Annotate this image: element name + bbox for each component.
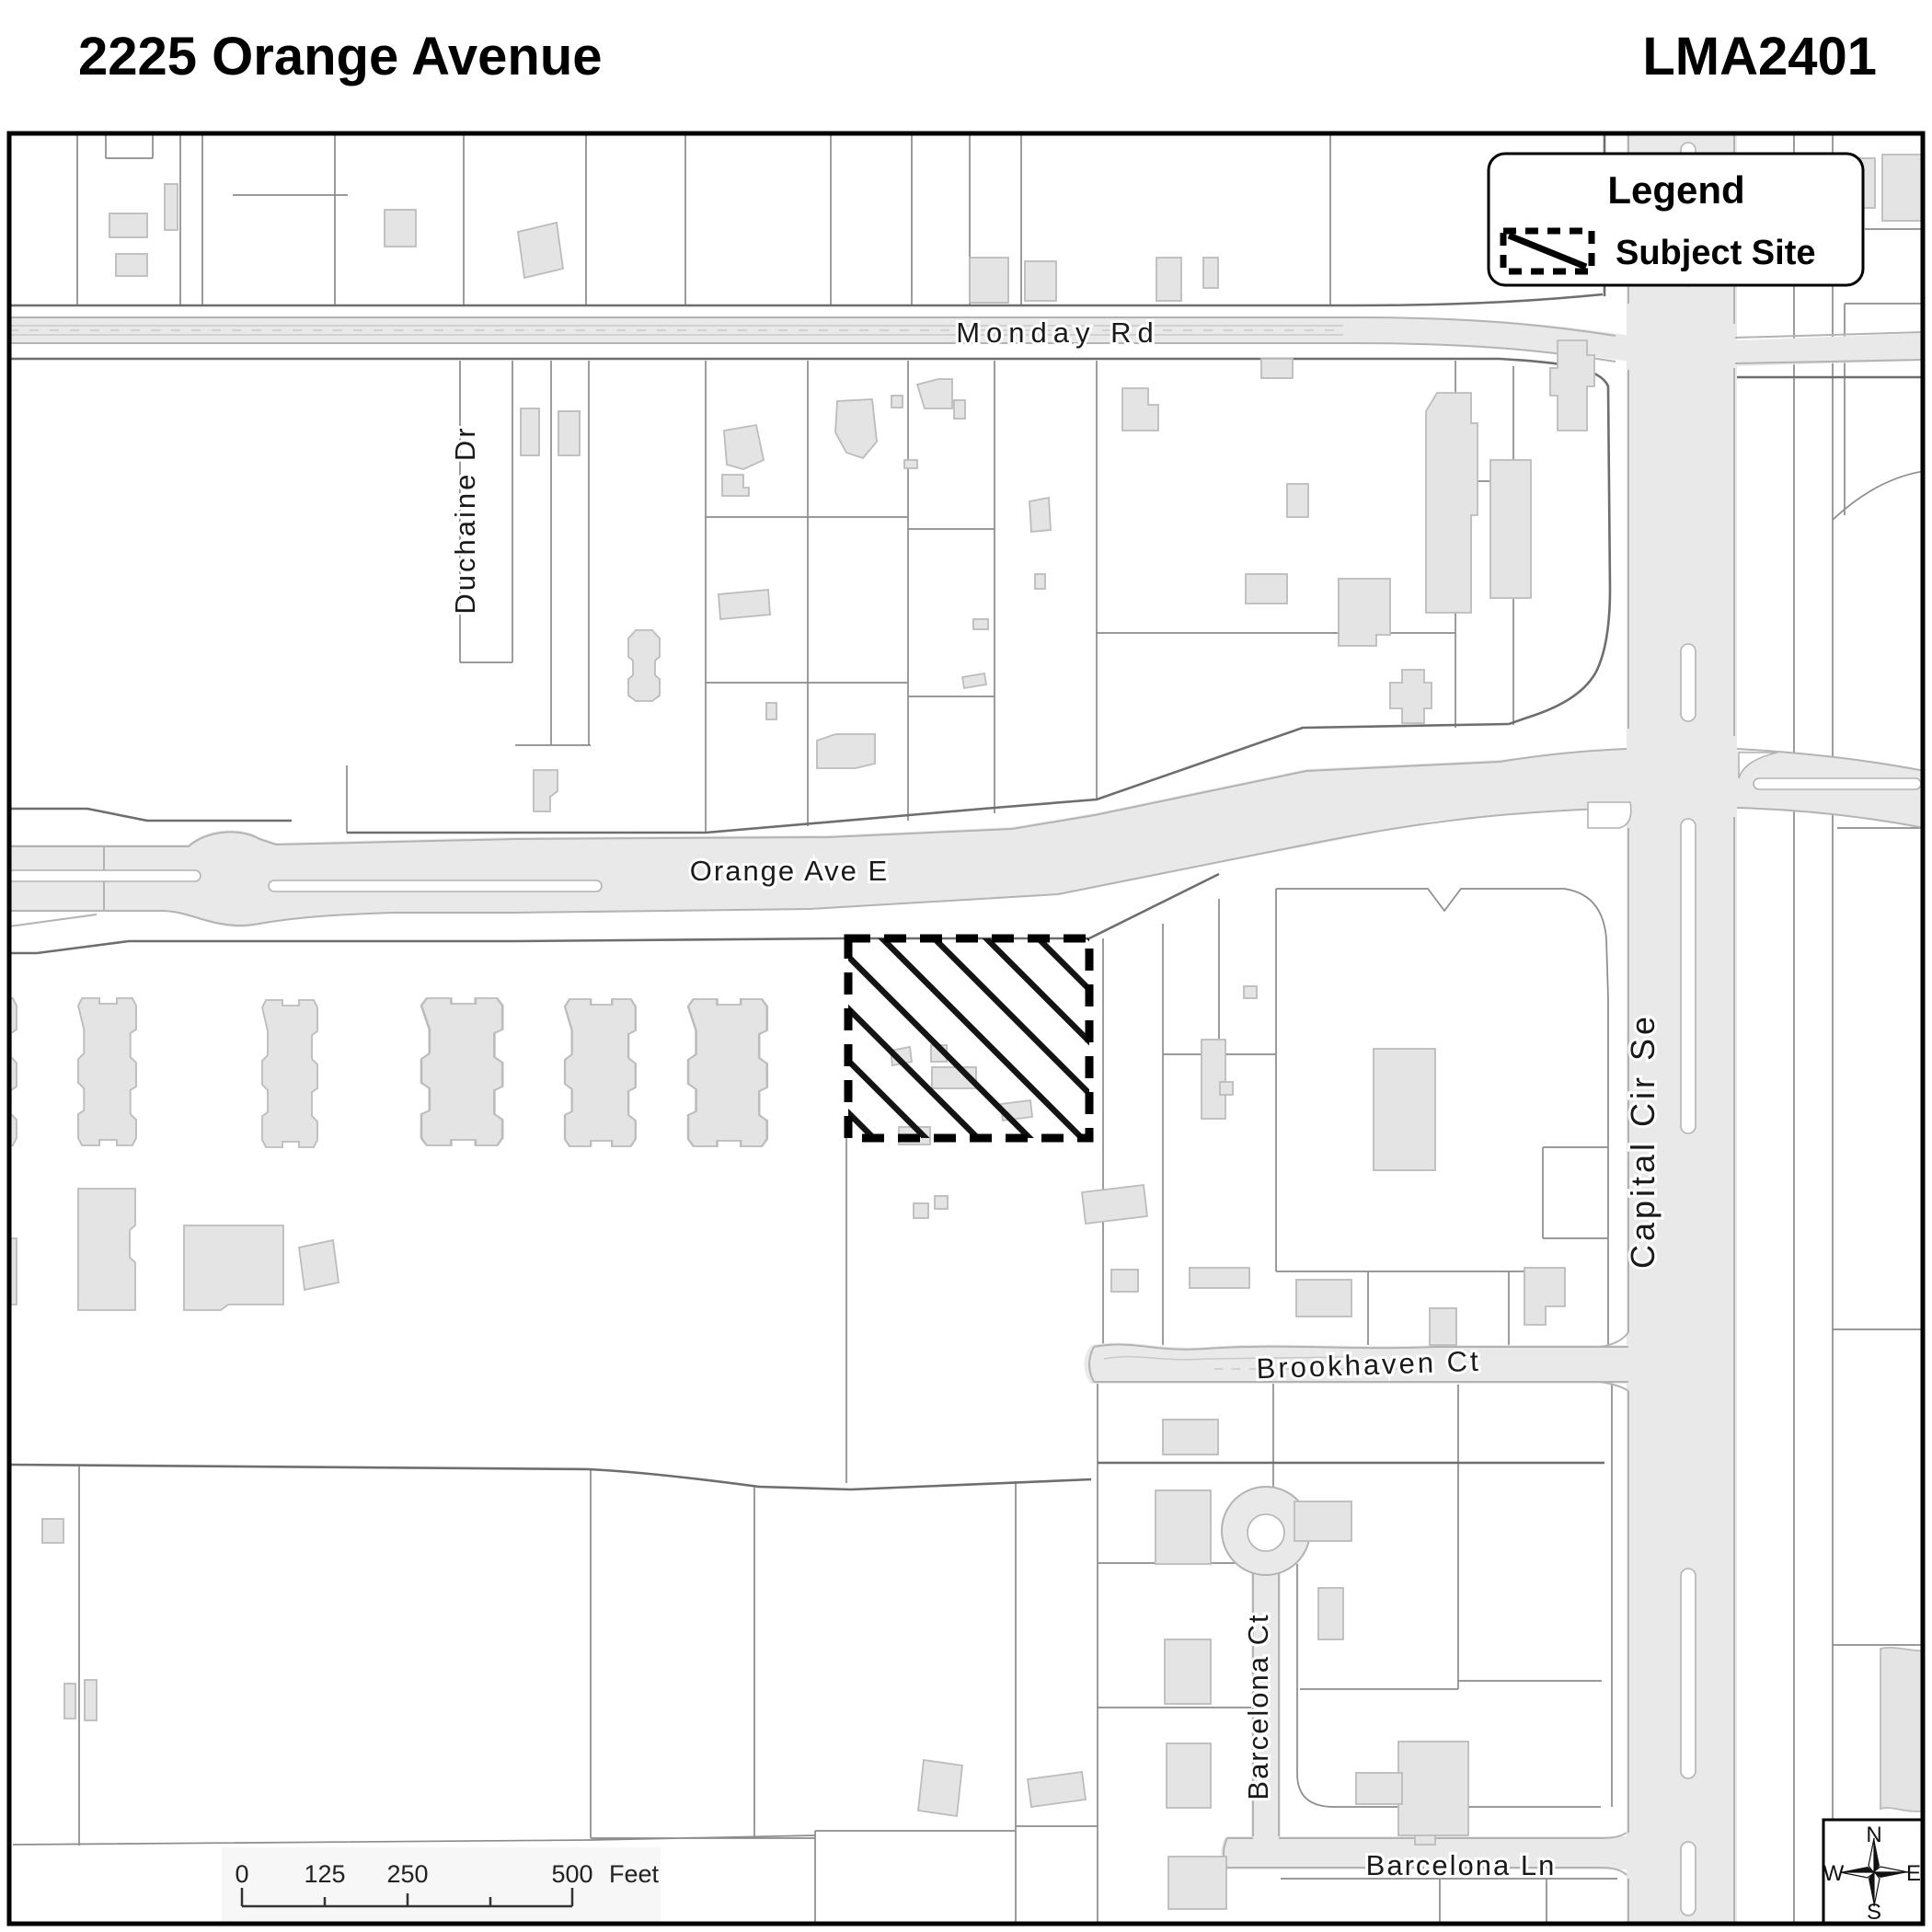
- compass-north: N: [1866, 1823, 1881, 1847]
- compass-rose: N S W E: [1823, 1820, 1923, 1925]
- scale-bar-background: [222, 1847, 661, 1925]
- scale-tick-0: 0: [235, 1860, 248, 1888]
- compass-west: W: [1823, 1861, 1845, 1886]
- compass-south: S: [1867, 1900, 1881, 1925]
- label-duchaine-dr: Duchaine Dr: [449, 425, 481, 614]
- scale-unit: Feet: [609, 1860, 660, 1888]
- map-canvas: Monday Rd Duchaine Dr Orange Ave E Capit…: [0, 0, 1932, 1932]
- subject-site-hatch: [848, 938, 1089, 1138]
- scale-tick-125: 125: [304, 1860, 345, 1888]
- label-barcelona-ln: Barcelona Ln: [1366, 1849, 1557, 1881]
- legend: Legend Subject Site: [1489, 154, 1863, 285]
- subject-site: [848, 938, 1089, 1138]
- legend-title: Legend: [1607, 168, 1744, 212]
- label-monday-rd: Monday Rd: [956, 316, 1160, 349]
- scale-bar: 0 125 250 500 Feet: [222, 1847, 661, 1925]
- scale-tick-500: 500: [551, 1860, 592, 1888]
- legend-subject-site-label: Subject Site: [1616, 234, 1816, 272]
- label-barcelona-ct: Barcelona Ct: [1242, 1613, 1274, 1800]
- label-capital-cir: Capital Cir Se: [1624, 1013, 1662, 1269]
- label-orange-ave: Orange Ave E: [690, 855, 889, 887]
- scale-tick-250: 250: [386, 1860, 428, 1888]
- map-page: 2225 Orange Avenue LMA2401: [0, 0, 1932, 1932]
- compass-east: E: [1906, 1861, 1921, 1886]
